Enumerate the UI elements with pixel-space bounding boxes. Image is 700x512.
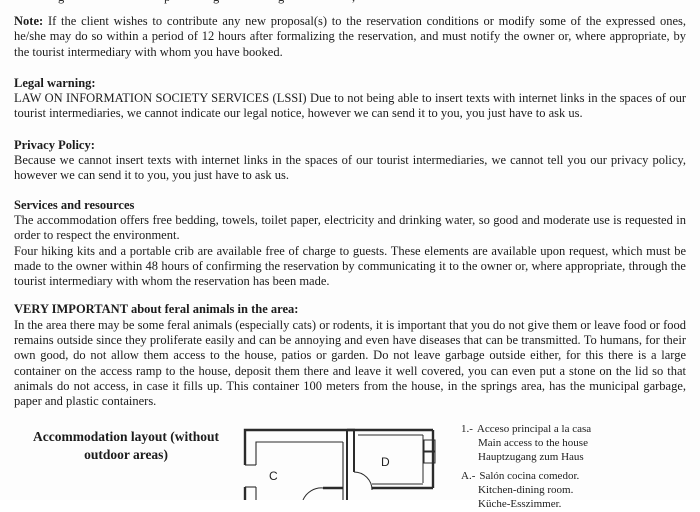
room-label-c: C (269, 469, 278, 483)
note-label: Note: (14, 14, 43, 28)
privacy-policy-heading: Privacy Policy: (14, 138, 686, 153)
legend-text: Hauptzugang zum Haus (461, 451, 591, 465)
accommodation-layout-heading: Accommodation layout (without outdoor ar… (14, 428, 238, 463)
floor-plan-legend: 1.-Acceso principal a la casa Main acces… (461, 423, 591, 512)
legend-key: A.- (461, 470, 475, 482)
legend-text: Main access to the house (461, 437, 591, 451)
feral-animals-heading: VERY IMPORTANT about feral animals in th… (14, 302, 686, 317)
legend-text: Acceso principal a la casa (477, 423, 591, 435)
services-heading: Services and resources (14, 198, 686, 213)
privacy-policy-paragraph: Because we cannot insert texts with inte… (14, 153, 686, 184)
clipped-top-line: g p g g , (14, 0, 686, 8)
wall (256, 442, 343, 465)
legend-line: A.-Salón cocina comedor. (461, 470, 591, 484)
legal-warning-paragraph: LAW ON INFORMATION SOCIETY SERVICES (LSS… (14, 91, 686, 122)
legend-line: 1.-Acceso principal a la casa (461, 423, 591, 437)
clipped-glyph: g (213, 0, 219, 5)
door-arc (354, 472, 372, 490)
clipped-glyph: g (278, 0, 284, 5)
wall (245, 430, 355, 465)
clipped-glyph: g (58, 0, 64, 5)
document-body: g p g g , Note: If the client wishes to … (0, 0, 700, 410)
services-paragraph-1: The accommodation offers free bedding, t… (14, 213, 686, 244)
document-page: g p g g , Note: If the client wishes to … (0, 0, 700, 500)
note-text: If the client wishes to contribute any n… (14, 14, 686, 59)
clipped-glyph: , (352, 0, 355, 5)
feral-animals-paragraph: In the area there may be some feral anim… (14, 318, 686, 410)
legend-key: 1.- (461, 423, 473, 435)
floor-plan-diagram: C D (243, 421, 443, 500)
clipped-glyph: p (164, 0, 170, 5)
door-arc (303, 488, 323, 500)
room-label-d: D (381, 455, 390, 469)
legal-warning-heading: Legal warning: (14, 76, 686, 91)
legend-text: Salón cocina comedor. (479, 470, 579, 482)
legend-item-a: A.-Salón cocina comedor. Kitchen-dining … (461, 470, 591, 511)
accommodation-layout-section: Accommodation layout (without outdoor ar… (0, 421, 700, 500)
note-paragraph: Note: If the client wishes to contribute… (14, 14, 686, 60)
legend-text: Küche-Esszimmer. (461, 498, 591, 512)
services-paragraph-2: Four hiking kits and a portable crib are… (14, 244, 686, 290)
legend-item-1: 1.-Acceso principal a la casa Main acces… (461, 423, 591, 464)
legend-text: Kitchen-dining room. (461, 484, 591, 498)
